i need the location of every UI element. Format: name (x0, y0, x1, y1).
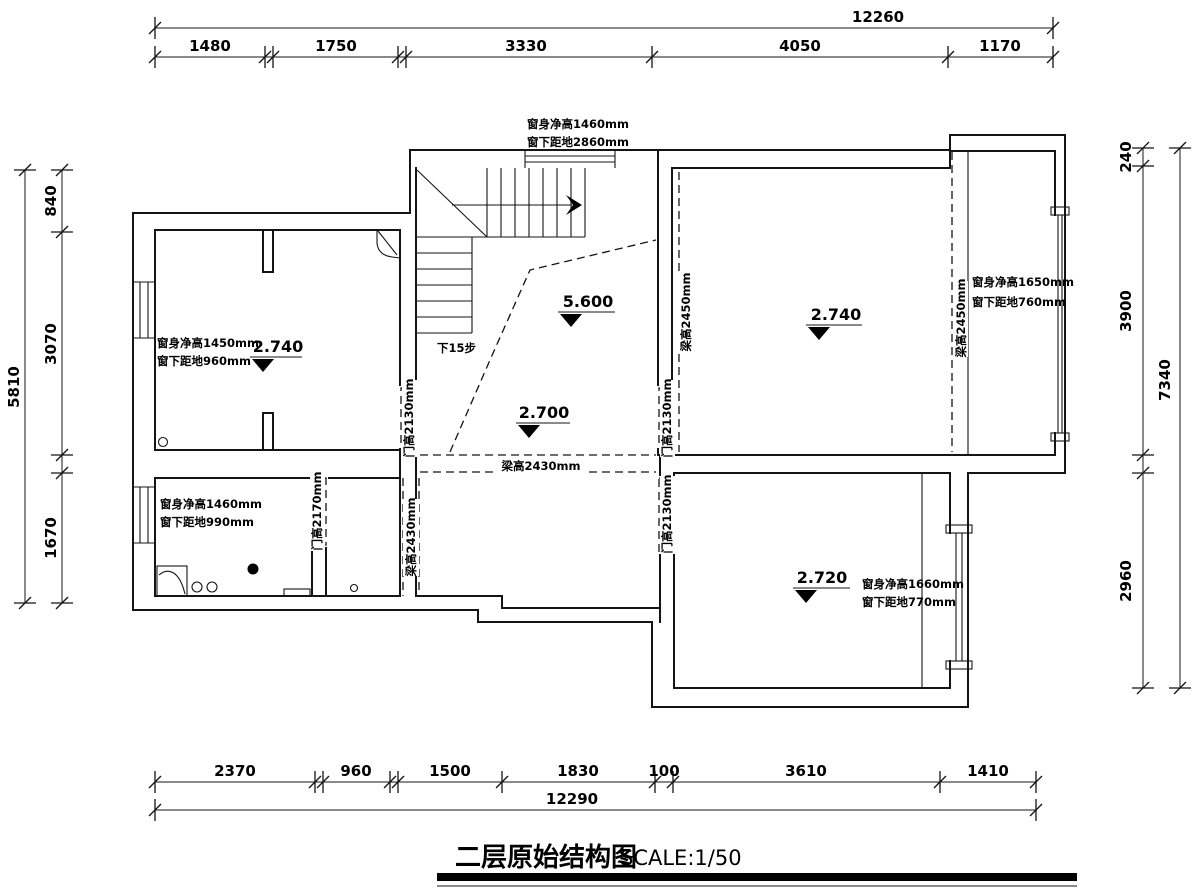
elevation-hall: 2.700 (519, 403, 570, 422)
win-left-line2: 窗下距地960mm (157, 354, 251, 368)
dimension-left: 5810 840 3070 1670 (5, 164, 73, 609)
dim-bottom-seg-3: 1830 (557, 762, 599, 780)
beam-label-right-wing-right: 梁高2450mm (954, 279, 968, 359)
dim-bottom-seg-0: 2370 (214, 762, 256, 780)
dim-left-seg-2: 1670 (42, 517, 60, 559)
win-lower-right-line1: 窗身净高1660mm (862, 577, 964, 591)
dim-top-seg-0: 1480 (189, 37, 231, 55)
floor-drain (248, 564, 259, 575)
flue-duct (377, 230, 400, 258)
dim-bottom-seg-5: 3610 (785, 762, 827, 780)
window-left-room (133, 282, 155, 338)
dim-left-seg-0: 840 (42, 185, 60, 216)
windows (133, 150, 1069, 669)
elevation-lower-right-room: 2.720 (797, 568, 848, 587)
win-bath-line2: 窗下距地990mm (160, 515, 254, 529)
fixture-circle (192, 582, 202, 592)
win-left-line1: 窗身净高1450mm (157, 336, 259, 350)
dim-left-seg-1: 3070 (42, 323, 60, 365)
elevation-stair: 5.600 (563, 292, 614, 311)
beam-label-lower-left: 梁高2430mm (404, 498, 418, 578)
floor-title: 二层原始结构图 (455, 843, 637, 873)
win-bath-line1: 窗身净高1460mm (160, 497, 262, 511)
dimension-top: 12260 1480 1750 3330 4050 1170 (149, 8, 1059, 68)
window-right-bay (1055, 215, 1065, 433)
dim-right-total: 7340 (1156, 359, 1174, 401)
dim-right-seg-0: 240 (1117, 141, 1135, 172)
window-bathroom (133, 487, 155, 543)
dim-bottom-seg-1: 960 (340, 762, 371, 780)
fixture-circle-small (351, 585, 358, 592)
elevation-markers: 2.740 5.600 2.700 2.740 2.720 (250, 292, 862, 603)
win-right-line2: 窗下距地760mm (972, 295, 1066, 309)
dim-top-seg-2: 3330 (505, 37, 547, 55)
dim-top-total: 12260 (852, 8, 904, 26)
win-top-line2: 窗下距地2860mm (527, 135, 629, 149)
beam-door-labels: 梁高2450mm 梁高2450mm 梁高2430mm 梁高2430mm 门高21… (310, 273, 968, 578)
dim-bottom-seg-4: 100 (648, 762, 679, 780)
dim-right-seg-1: 3900 (1117, 290, 1135, 332)
win-lower-right-line2: 窗下距地770mm (862, 595, 956, 609)
beams (403, 152, 952, 596)
beam-label-mid-horizontal: 梁高2430mm (501, 459, 581, 473)
elevation-left-room: 2.740 (253, 337, 304, 356)
dimension-right: 240 3900 2960 7340 (1117, 141, 1191, 694)
door-threshold (284, 589, 310, 596)
door-label-lower-right: 门高2130mm (660, 475, 674, 554)
title-underline-bar (437, 873, 1077, 881)
door-openings (310, 386, 676, 554)
stair-note: 下15步 (437, 341, 476, 355)
dim-top-seg-4: 1170 (979, 37, 1021, 55)
door-label-hall-right: 门高2130mm (660, 379, 674, 458)
dim-bottom-seg-6: 1410 (967, 762, 1009, 780)
dim-right-seg-2: 2960 (1117, 560, 1135, 602)
dim-bottom-seg-2: 1500 (429, 762, 471, 780)
dim-bottom-total: 12290 (546, 790, 598, 808)
fixture-circle-small (159, 438, 168, 447)
elevation-right-room: 2.740 (811, 305, 862, 324)
win-right-line1: 窗身净高1650mm (972, 275, 1074, 289)
shower-tray (157, 566, 187, 596)
title-block: 二层原始结构图 SCALE:1/50 (437, 843, 1077, 886)
floor-plan-drawing: 2.740 5.600 2.700 2.740 2.720 窗身净高1460mm… (0, 0, 1200, 889)
staircase (416, 168, 585, 333)
window-annotations: 窗身净高1460mm 窗下距地2860mm 窗身净高1450mm 窗下距地960… (157, 117, 1074, 609)
dim-top-seg-1: 1750 (315, 37, 357, 55)
fixtures (157, 230, 400, 596)
door-label-bathroom: 门高2170mm (310, 472, 324, 551)
dim-top-seg-3: 4050 (779, 37, 821, 55)
fixture-circle (207, 582, 217, 592)
dim-left-total: 5810 (5, 366, 23, 408)
scale-label: SCALE:1/50 (620, 846, 742, 870)
win-top-line1: 窗身净高1460mm (527, 117, 629, 131)
dimension-bottom: 2370 960 1500 1830 100 3610 1410 12290 (149, 762, 1042, 821)
beam-label-right-wing-left: 梁高2450mm (679, 273, 693, 353)
window-top (525, 150, 615, 168)
door-label-hall-left: 门高2130mm (402, 379, 416, 458)
